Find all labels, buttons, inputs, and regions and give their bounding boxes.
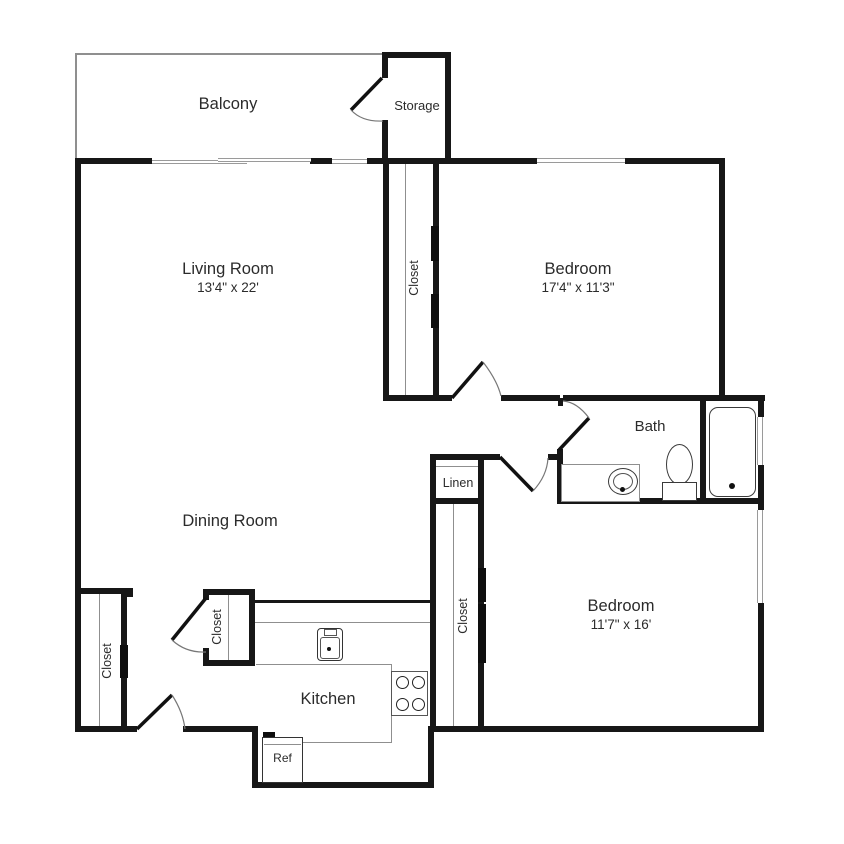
bedroom-bottom-door-arc xyxy=(533,458,548,491)
bedroom-top-door-arc xyxy=(483,362,501,396)
bedroom-top-label: Bedroom xyxy=(498,260,658,278)
bedroom-bottom-label: Bedroom xyxy=(541,597,701,615)
bath-sink-faucet xyxy=(620,487,625,492)
bedroom-top-dimensions: 17'4" x 11'3" xyxy=(498,281,658,296)
floor-plan: Balcony Storage Living Room 13'4" x 22' … xyxy=(0,0,844,844)
stove-burner xyxy=(412,676,425,689)
bath-door-panel xyxy=(559,418,589,450)
stove-burner xyxy=(396,676,409,689)
dining-closet-door-arc xyxy=(172,640,206,652)
kitchen-sink-faucet xyxy=(324,629,337,636)
bedroom-top-door-panel xyxy=(452,362,483,398)
stove-burner xyxy=(412,698,425,711)
linen-label: Linen xyxy=(428,477,488,491)
bedroom-bottom-dimensions: 11'7" x 16' xyxy=(541,618,701,633)
balcony-label: Balcony xyxy=(153,95,303,113)
closet-left-label: Closet xyxy=(100,626,114,696)
refrigerator-label: Ref xyxy=(262,752,303,765)
dining-closet-door-panel xyxy=(172,598,206,640)
stove-burner xyxy=(396,698,409,711)
refrigerator-handle xyxy=(263,732,275,737)
closet-bedroom-label: Closet xyxy=(456,581,470,651)
refrigerator-line xyxy=(264,744,301,745)
dining-room-label: Dining Room xyxy=(150,512,310,530)
kitchen-sink-drain xyxy=(327,647,331,651)
entry-door-panel xyxy=(137,695,172,729)
closet-hall-label: Closet xyxy=(407,243,421,313)
toilet-tank xyxy=(662,482,697,501)
closet-dining-label: Closet xyxy=(210,592,224,662)
bath-door-arc xyxy=(563,401,589,418)
living-room-label: Living Room xyxy=(148,260,308,278)
storage-label: Storage xyxy=(377,99,457,113)
bedroom-bottom-door-panel xyxy=(500,457,533,491)
entry-door-arc xyxy=(172,695,185,729)
toilet-bowl xyxy=(666,444,693,485)
bath-label: Bath xyxy=(610,419,690,436)
living-room-dimensions: 13'4" x 22' xyxy=(148,281,308,296)
bathtub-drain xyxy=(729,483,735,489)
kitchen-label: Kitchen xyxy=(268,690,388,708)
